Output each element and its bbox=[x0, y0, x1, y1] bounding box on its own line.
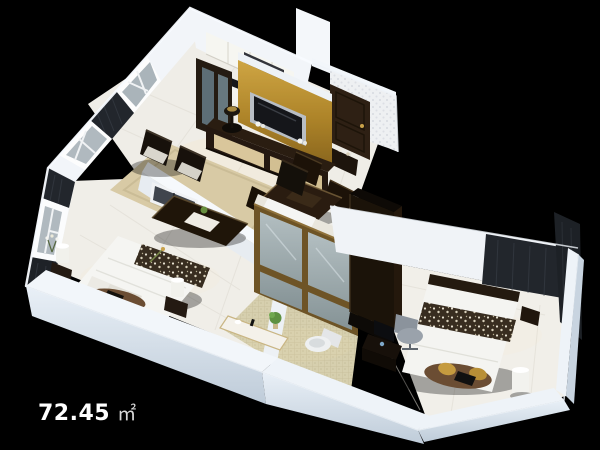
flower-icon bbox=[161, 247, 165, 251]
bottle-icon bbox=[380, 342, 384, 346]
plant-icon bbox=[201, 207, 208, 214]
area-unit: ㎡ bbox=[117, 402, 136, 425]
floorplan-render-canvas: 72.45 ㎡ bbox=[0, 0, 600, 450]
apartment-3d-render: 72.45 ㎡ bbox=[0, 0, 600, 450]
area-value: 72.45 bbox=[38, 401, 110, 426]
door-handle-icon bbox=[360, 124, 364, 128]
area-label: 72.45 ㎡ bbox=[38, 401, 136, 426]
